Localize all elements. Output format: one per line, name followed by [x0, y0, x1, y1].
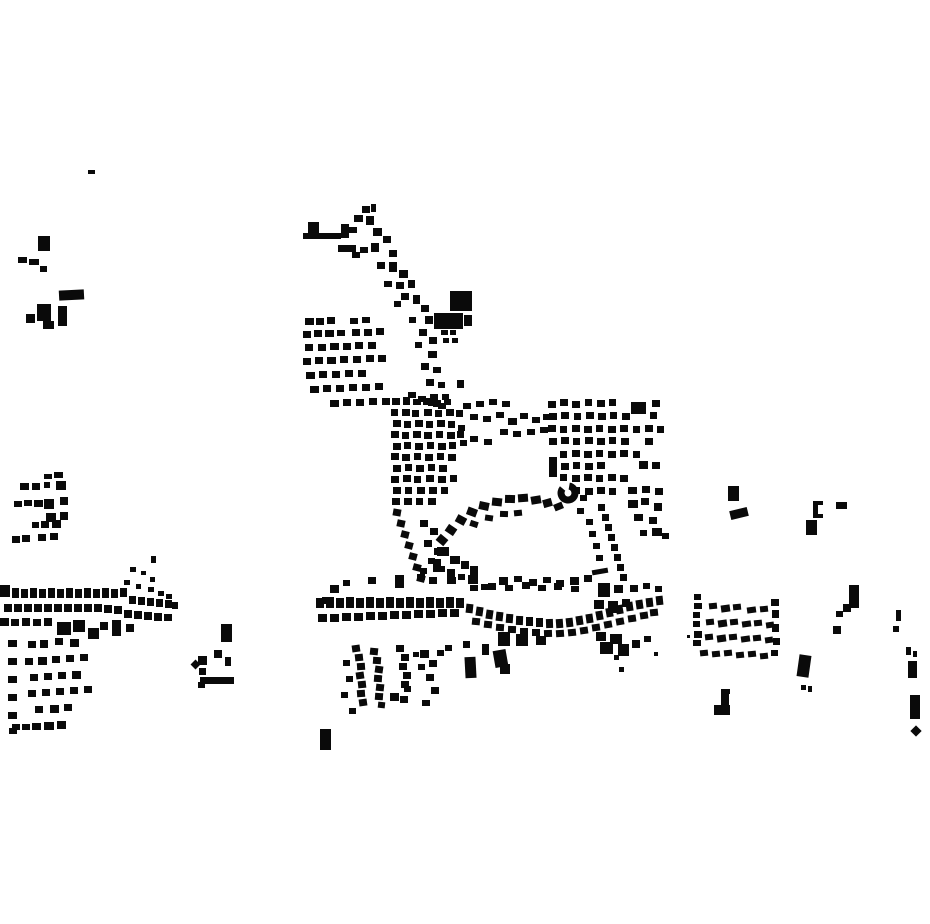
building [28, 641, 36, 648]
building [66, 655, 74, 662]
building [42, 689, 50, 696]
building [466, 507, 478, 518]
building [485, 514, 494, 521]
building [592, 568, 609, 576]
building [608, 426, 616, 433]
building [608, 601, 618, 613]
building [303, 233, 341, 239]
building [556, 630, 564, 638]
building [478, 501, 489, 511]
building [488, 583, 496, 590]
building [717, 634, 727, 642]
building [635, 600, 643, 610]
building [492, 497, 503, 506]
building [431, 687, 439, 694]
building [414, 476, 421, 483]
building [416, 465, 424, 472]
building [371, 243, 379, 252]
building [566, 618, 574, 628]
building [389, 262, 397, 272]
building [621, 438, 629, 445]
building [836, 611, 843, 617]
building [18, 257, 27, 263]
building [326, 597, 334, 608]
building [570, 577, 579, 585]
building [100, 622, 108, 630]
building [496, 612, 504, 622]
building [30, 674, 38, 681]
building [433, 367, 441, 373]
building [60, 497, 68, 505]
building [520, 628, 528, 635]
building [572, 401, 580, 408]
building [148, 587, 154, 592]
building [414, 453, 421, 460]
building [375, 383, 383, 390]
building [373, 228, 382, 236]
building [337, 330, 345, 336]
building [571, 586, 579, 592]
building [44, 722, 54, 730]
building [28, 690, 36, 697]
building [836, 502, 847, 509]
building [124, 580, 130, 585]
building [138, 597, 145, 605]
building [560, 426, 567, 433]
building [412, 410, 419, 417]
building [610, 412, 617, 419]
building [538, 585, 546, 591]
building [650, 412, 657, 419]
building [341, 224, 349, 238]
building [80, 654, 88, 661]
building [126, 624, 134, 632]
building [585, 614, 593, 624]
building [38, 534, 46, 541]
building [150, 577, 155, 582]
building [303, 331, 311, 338]
building [423, 398, 430, 405]
building [199, 668, 206, 675]
building [392, 498, 400, 505]
building [499, 577, 508, 585]
building [546, 619, 553, 628]
building [147, 598, 154, 606]
building [526, 617, 533, 626]
building [548, 401, 556, 408]
building [44, 474, 52, 479]
building [470, 436, 478, 442]
building [406, 597, 414, 608]
building [359, 698, 368, 706]
building [553, 502, 564, 512]
building [596, 632, 606, 641]
building [908, 661, 917, 678]
building [104, 605, 112, 613]
building [438, 609, 447, 617]
building [633, 451, 640, 458]
building [93, 589, 100, 598]
building [73, 620, 85, 632]
building [354, 613, 363, 621]
building [771, 650, 778, 656]
building [319, 371, 327, 378]
building [549, 413, 557, 420]
building [640, 530, 647, 536]
building [543, 577, 551, 583]
building [813, 501, 823, 505]
building [392, 398, 400, 405]
building [428, 464, 435, 471]
building [343, 343, 351, 350]
building [645, 438, 653, 445]
building [404, 498, 412, 505]
building [343, 580, 350, 586]
building [420, 568, 427, 574]
building [382, 398, 390, 405]
building [572, 475, 580, 482]
building [94, 604, 102, 612]
building [24, 604, 32, 612]
building [368, 342, 376, 349]
building [463, 641, 470, 648]
building [496, 624, 504, 632]
building [560, 451, 567, 458]
building [57, 721, 66, 729]
building [516, 634, 528, 646]
building [646, 598, 654, 608]
building [482, 644, 489, 655]
building [429, 337, 437, 344]
building [586, 519, 593, 525]
building [402, 454, 410, 461]
building [32, 522, 39, 528]
building [403, 397, 410, 405]
building [413, 652, 419, 657]
building [797, 654, 812, 677]
building [352, 252, 360, 258]
building [645, 425, 653, 432]
building [424, 409, 432, 416]
building [630, 585, 638, 592]
building [584, 474, 592, 481]
building [733, 604, 742, 611]
building [225, 657, 231, 666]
building [124, 610, 132, 618]
building [426, 674, 434, 681]
map-viewport [0, 0, 930, 924]
building [652, 462, 660, 469]
building [476, 401, 484, 407]
building [401, 293, 409, 300]
building [597, 462, 605, 469]
building [445, 524, 458, 536]
building [376, 598, 384, 608]
building [441, 487, 448, 494]
building [584, 426, 592, 433]
building [641, 498, 649, 505]
building [33, 619, 41, 626]
building [12, 536, 20, 543]
building [378, 355, 386, 362]
building [447, 569, 455, 577]
building [29, 259, 39, 265]
building [436, 431, 443, 438]
building [514, 576, 522, 582]
building [383, 236, 391, 243]
building [396, 282, 404, 289]
building [652, 400, 660, 407]
building [765, 636, 774, 643]
building [436, 534, 449, 547]
building [57, 589, 64, 598]
building [386, 597, 394, 608]
building [598, 504, 605, 511]
building [111, 589, 118, 598]
building [158, 591, 164, 596]
building [548, 425, 556, 432]
building [712, 651, 721, 658]
building [542, 498, 553, 508]
building [366, 355, 374, 362]
building [366, 216, 374, 225]
building [466, 604, 474, 614]
building [316, 598, 324, 608]
building [718, 619, 728, 627]
building [420, 650, 429, 658]
building [464, 657, 476, 679]
building [602, 514, 609, 521]
building [577, 508, 584, 514]
building [598, 413, 606, 420]
building [52, 656, 60, 663]
building [586, 412, 594, 419]
building [35, 706, 43, 713]
building [417, 574, 425, 580]
building [502, 401, 510, 407]
building [709, 603, 718, 610]
building [639, 461, 648, 469]
building [628, 500, 638, 508]
building [427, 442, 434, 449]
building [456, 410, 463, 417]
building [441, 330, 448, 335]
building [714, 705, 730, 715]
building [402, 432, 409, 439]
building [500, 664, 510, 674]
building [516, 616, 523, 625]
building [393, 443, 401, 450]
building [617, 564, 624, 571]
building [366, 597, 374, 608]
building [414, 610, 423, 618]
building [59, 289, 84, 300]
building [44, 499, 54, 509]
building [25, 658, 33, 665]
building [536, 618, 543, 627]
building [424, 540, 432, 547]
building [729, 634, 738, 641]
building [318, 614, 327, 622]
building [369, 398, 377, 405]
building [172, 602, 178, 609]
building [608, 534, 615, 541]
building [470, 414, 478, 420]
building [44, 604, 52, 612]
building [561, 463, 569, 470]
building [54, 604, 62, 612]
building [747, 606, 757, 613]
building [596, 555, 603, 561]
building [773, 638, 780, 645]
building [426, 610, 435, 618]
building [529, 579, 537, 586]
building [424, 432, 432, 439]
building [84, 604, 92, 612]
building [400, 530, 409, 539]
building [362, 206, 370, 213]
building [415, 342, 422, 348]
building [748, 651, 757, 658]
building [395, 575, 404, 588]
building [469, 520, 478, 528]
building [615, 617, 624, 625]
building [166, 594, 172, 599]
building [405, 464, 412, 471]
building [505, 495, 515, 503]
building [561, 412, 569, 419]
building [430, 394, 438, 401]
building [593, 543, 600, 549]
building [618, 644, 629, 656]
building [88, 628, 99, 639]
building [554, 583, 562, 590]
building [413, 431, 421, 438]
building [373, 657, 381, 665]
building [906, 647, 911, 655]
building [520, 413, 528, 419]
building [22, 724, 30, 730]
building [48, 588, 55, 598]
building [391, 476, 399, 483]
building [532, 629, 540, 636]
building [450, 475, 457, 482]
building [572, 450, 580, 457]
building [72, 671, 81, 679]
building [736, 652, 745, 659]
building [40, 266, 47, 272]
building [84, 588, 91, 598]
building [496, 412, 504, 418]
building [165, 600, 172, 608]
building [358, 370, 366, 377]
building [460, 440, 467, 446]
building [403, 475, 411, 482]
building [44, 673, 52, 680]
building [620, 425, 628, 432]
building [14, 501, 22, 507]
building [438, 382, 445, 388]
building [362, 384, 370, 391]
building [346, 676, 353, 682]
building [349, 708, 356, 714]
building [34, 604, 42, 612]
building [164, 614, 172, 621]
building [425, 316, 433, 324]
building [428, 351, 437, 358]
building [399, 663, 407, 670]
building [415, 443, 423, 450]
building [34, 500, 43, 507]
building [305, 344, 313, 351]
building [403, 672, 411, 679]
building [449, 442, 456, 449]
building [642, 486, 650, 493]
building [628, 614, 637, 622]
building [580, 626, 589, 634]
building [356, 671, 365, 679]
building [354, 215, 363, 222]
building [447, 432, 455, 439]
building [458, 425, 465, 431]
building [355, 654, 364, 662]
building [342, 613, 351, 621]
building [336, 385, 344, 392]
building [438, 476, 446, 483]
building [655, 488, 663, 495]
building [772, 624, 779, 632]
building [589, 531, 596, 537]
building [468, 575, 478, 584]
building [330, 400, 339, 407]
building [413, 399, 421, 405]
building [608, 451, 616, 458]
building [22, 535, 30, 542]
building [352, 329, 360, 336]
building [620, 450, 628, 457]
building [40, 640, 48, 648]
building [310, 386, 319, 393]
building [66, 588, 73, 598]
building [585, 463, 593, 470]
building [389, 250, 397, 257]
building [392, 508, 401, 516]
building [628, 487, 637, 494]
building [596, 450, 603, 457]
building [458, 574, 465, 580]
building [378, 702, 386, 709]
building [433, 400, 441, 407]
building [21, 589, 28, 598]
building [64, 604, 72, 612]
building [44, 618, 52, 626]
building [483, 416, 491, 422]
building [580, 495, 587, 501]
building [44, 482, 50, 488]
building [415, 420, 423, 427]
building [801, 685, 806, 690]
building [498, 632, 510, 646]
building [8, 676, 17, 683]
building [58, 306, 67, 326]
building [84, 686, 92, 693]
building [325, 330, 334, 337]
building [391, 431, 399, 438]
building [130, 567, 136, 572]
building [50, 533, 58, 540]
building [771, 599, 779, 606]
building [484, 621, 493, 629]
